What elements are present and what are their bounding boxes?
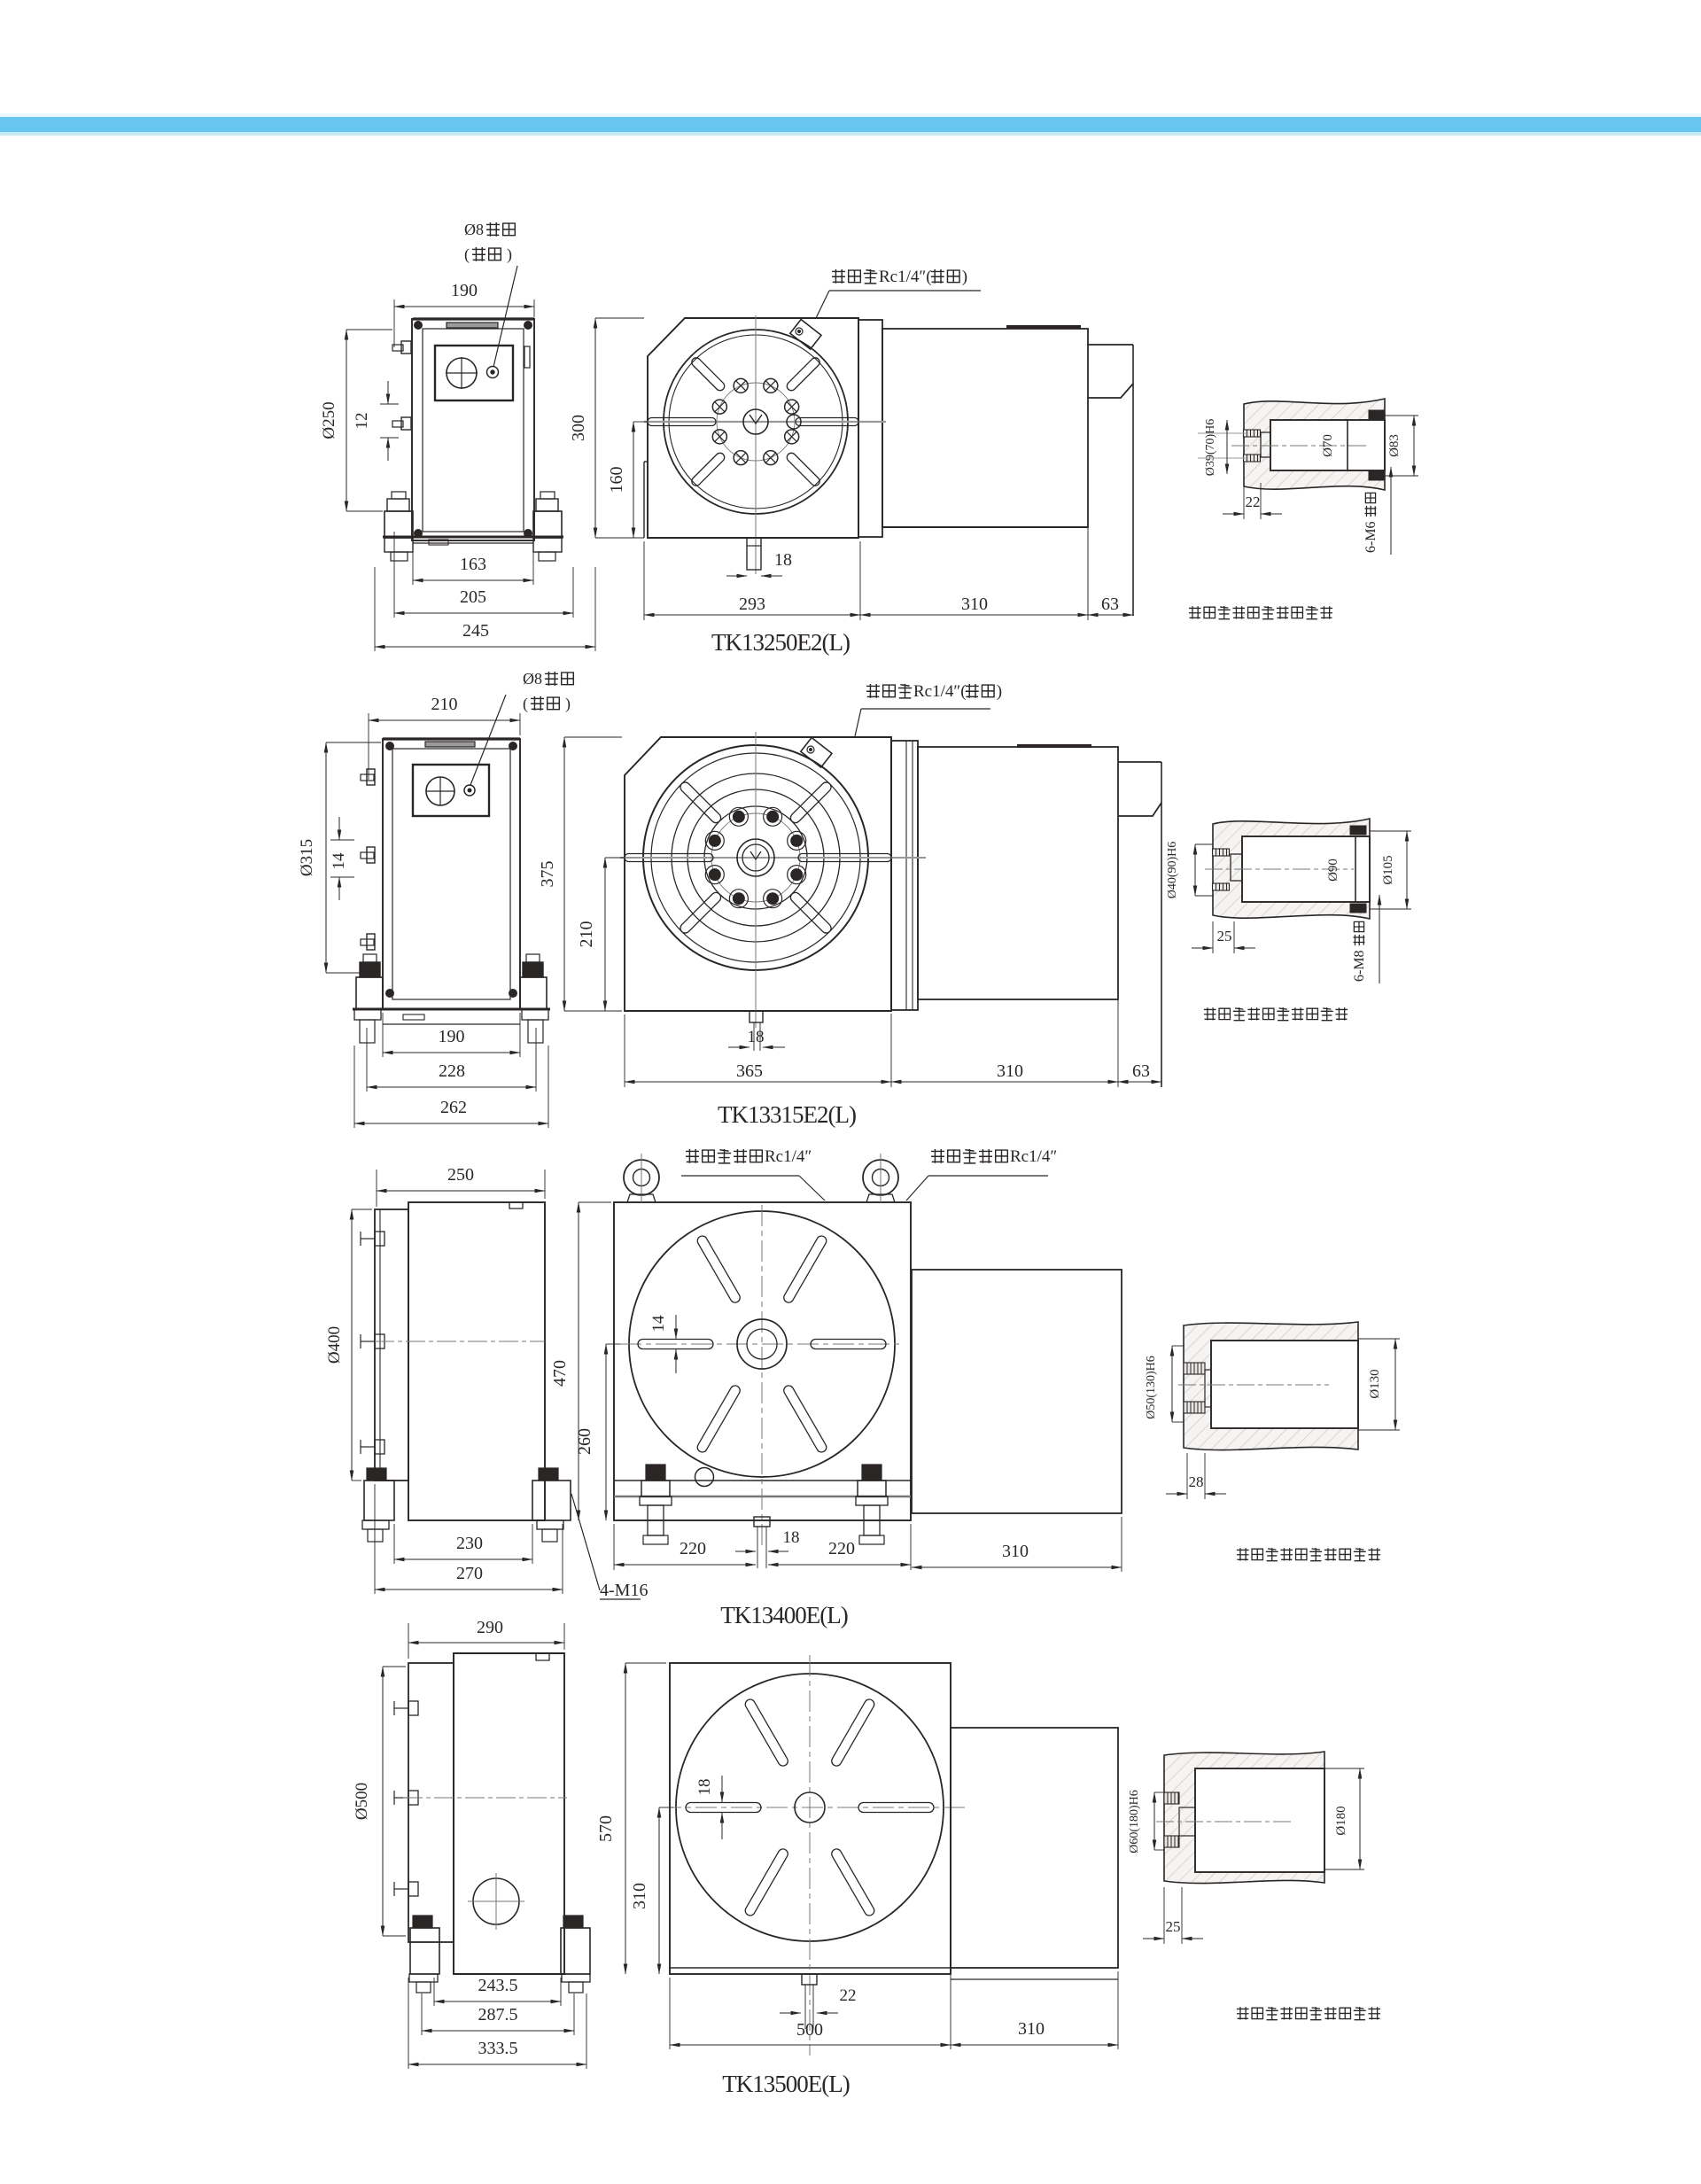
svg-text:500: 500	[796, 2020, 823, 2040]
svg-text:287.5: 287.5	[478, 2005, 518, 2025]
svg-text:205: 205	[460, 587, 486, 607]
svg-text:Ø180: Ø180	[1334, 1806, 1348, 1835]
svg-text:260: 260	[575, 1428, 594, 1455]
svg-text:Ø400: Ø400	[325, 1326, 344, 1364]
svg-text:Ø315: Ø315	[298, 839, 316, 876]
svg-text:TK13500E(L): TK13500E(L)	[722, 2071, 849, 2097]
svg-text:TK13400E(L): TK13400E(L)	[720, 1602, 847, 1628]
svg-text:310: 310	[997, 1061, 1023, 1081]
svg-text:12: 12	[353, 413, 371, 430]
svg-text:210: 210	[577, 921, 596, 948]
svg-text:6-M8: 6-M8	[1352, 950, 1367, 982]
svg-text:290: 290	[477, 1618, 503, 1637]
svg-text:): )	[962, 268, 967, 286]
svg-text:Ø8: Ø8	[464, 221, 484, 238]
svg-text:190: 190	[451, 281, 478, 300]
svg-text:63: 63	[1101, 595, 1119, 614]
svg-text:210: 210	[431, 695, 458, 714]
svg-text:14: 14	[330, 852, 348, 870]
svg-text:Ø8: Ø8	[523, 670, 542, 688]
svg-text:190: 190	[439, 1027, 465, 1046]
svg-text:243.5: 243.5	[478, 1976, 518, 1995]
svg-text:250: 250	[447, 1165, 474, 1185]
svg-text:310: 310	[630, 1883, 649, 1909]
svg-text:Ø105: Ø105	[1381, 855, 1395, 884]
svg-text:228: 228	[439, 1061, 465, 1081]
svg-text:): )	[997, 682, 1002, 701]
svg-text:4-M16: 4-M16	[600, 1581, 648, 1600]
svg-text:63: 63	[1132, 1061, 1150, 1081]
svg-text:Ø83: Ø83	[1387, 434, 1402, 457]
svg-text:230: 230	[456, 1534, 483, 1553]
svg-text:): )	[565, 695, 571, 713]
svg-text:293: 293	[739, 595, 765, 614]
svg-text:262: 262	[440, 1098, 467, 1117]
svg-text:333.5: 333.5	[478, 2039, 518, 2058]
svg-text:25: 25	[1217, 928, 1232, 944]
svg-text:28: 28	[1189, 1473, 1204, 1490]
svg-text:Rc1/4″: Rc1/4″	[765, 1147, 812, 1166]
svg-text:220: 220	[680, 1539, 706, 1558]
svg-text:TK13250E2(L): TK13250E2(L)	[711, 629, 850, 656]
svg-text:14: 14	[649, 1315, 668, 1333]
svg-text:Ø60(180)H6: Ø60(180)H6	[1128, 1790, 1141, 1854]
svg-text:22: 22	[1246, 494, 1261, 510]
svg-text:TK13315E2(L): TK13315E2(L)	[718, 1101, 856, 1128]
svg-text:Ø70: Ø70	[1321, 434, 1335, 457]
svg-text:18: 18	[783, 1528, 800, 1547]
svg-text:163: 163	[460, 555, 486, 574]
svg-text:Rc1/4″(: Rc1/4″(	[913, 682, 967, 701]
svg-text:375: 375	[538, 861, 557, 888]
svg-text:570: 570	[596, 1815, 616, 1842]
svg-text:Ø40(90)H6: Ø40(90)H6	[1166, 842, 1179, 899]
svg-text:22: 22	[840, 1986, 857, 2005]
svg-text:18: 18	[748, 1028, 765, 1046]
svg-text:365: 365	[736, 1061, 763, 1081]
svg-text:245: 245	[462, 621, 489, 641]
svg-text:Ø250: Ø250	[320, 401, 338, 439]
svg-text:310: 310	[1018, 2019, 1045, 2039]
svg-text:470: 470	[550, 1360, 570, 1387]
svg-text:25: 25	[1166, 1918, 1181, 1935]
svg-text:(: (	[523, 695, 528, 713]
svg-text:160: 160	[607, 467, 626, 494]
svg-text:310: 310	[961, 595, 988, 614]
svg-text:220: 220	[828, 1539, 855, 1558]
svg-text:Ø39(70)H6: Ø39(70)H6	[1204, 419, 1217, 477]
svg-text:Rc1/4″: Rc1/4″	[1010, 1147, 1057, 1166]
svg-text:Ø130: Ø130	[1368, 1369, 1382, 1398]
svg-text:): )	[507, 245, 512, 264]
svg-text:6-M6: 6-M6	[1363, 521, 1379, 553]
svg-text:270: 270	[456, 1564, 483, 1583]
svg-text:Ø50(130)H6: Ø50(130)H6	[1145, 1356, 1158, 1419]
svg-text:(: (	[464, 245, 470, 264]
svg-text:310: 310	[1002, 1542, 1029, 1561]
svg-text:Rc1/4″(: Rc1/4″(	[879, 268, 932, 286]
svg-text:300: 300	[569, 415, 588, 441]
svg-text:18: 18	[695, 1779, 714, 1796]
svg-text:Ø90: Ø90	[1326, 859, 1340, 882]
svg-text:Ø500: Ø500	[353, 1783, 371, 1820]
svg-text:18: 18	[774, 550, 792, 570]
